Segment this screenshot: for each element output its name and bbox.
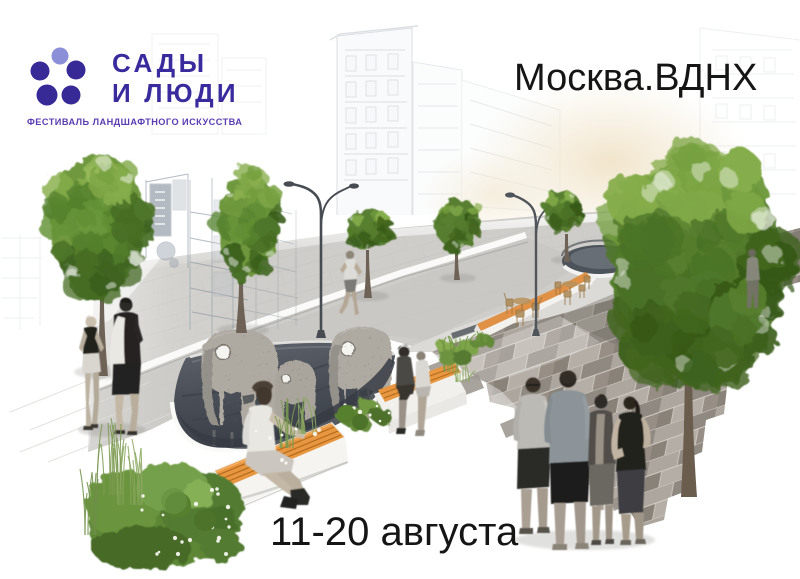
- svg-text:САДЫ: САДЫ: [112, 48, 207, 78]
- svg-text:Москва.ВДНХ: Москва.ВДНХ: [514, 57, 757, 99]
- svg-text:ФЕСТИВАЛЬ ЛАНДШАФТНОГО ИСКУССТ: ФЕСТИВАЛЬ ЛАНДШАФТНОГО ИСКУССТВА: [27, 117, 242, 127]
- svg-text:И ЛЮДИ: И ЛЮДИ: [112, 78, 239, 108]
- svg-text:11-20 августа: 11-20 августа: [270, 510, 519, 554]
